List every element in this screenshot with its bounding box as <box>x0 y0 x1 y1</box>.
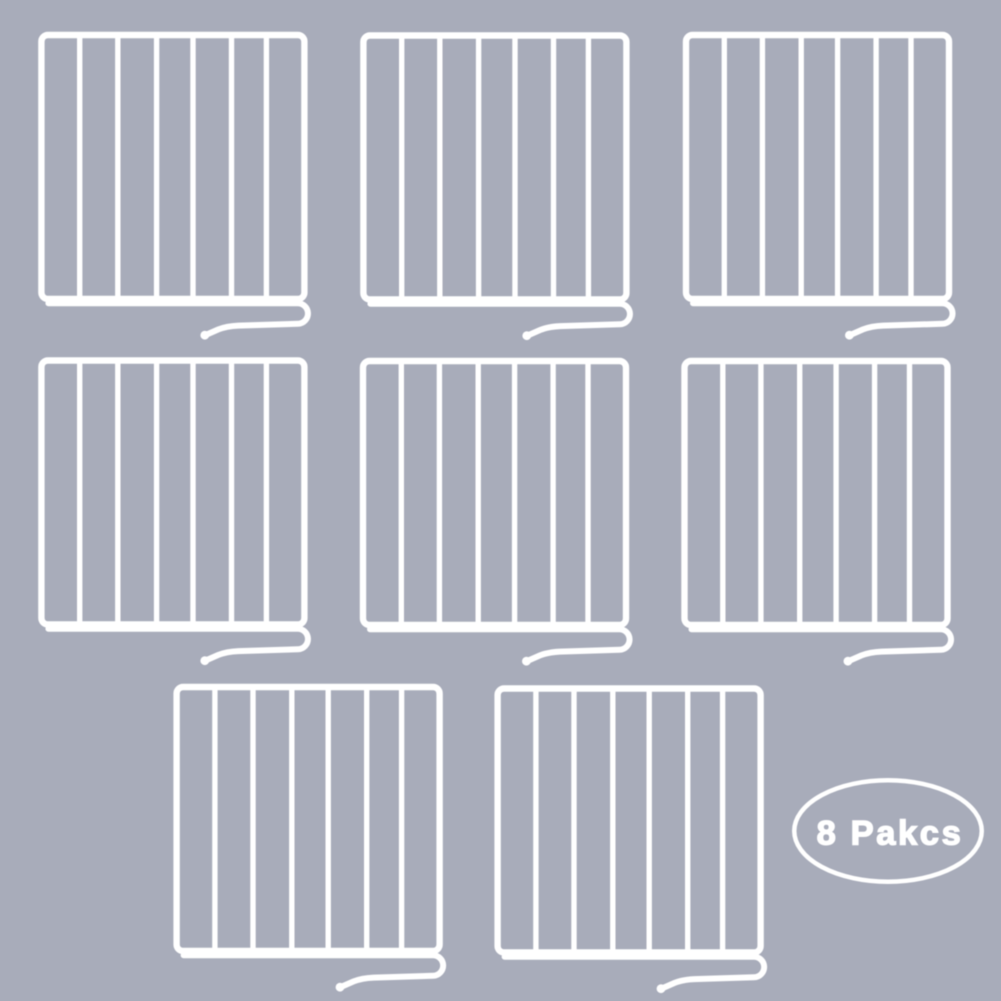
svg-text:8 Pakcs: 8 Pakcs <box>817 815 964 853</box>
